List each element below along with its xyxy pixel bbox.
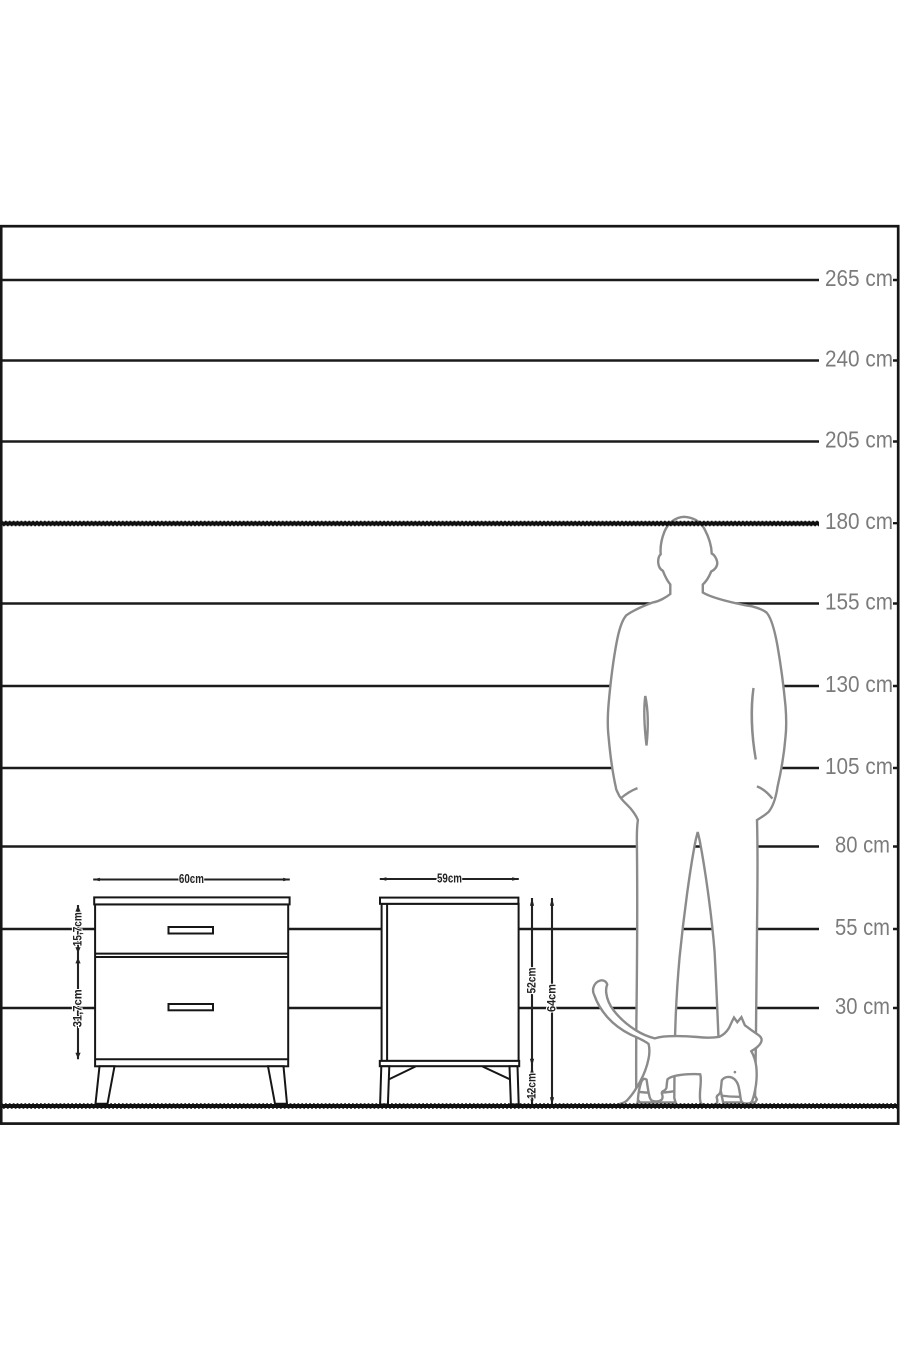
svg-text:59cm: 59cm — [437, 871, 462, 886]
svg-text:52cm: 52cm — [525, 968, 539, 994]
svg-text:130 cm: 130 cm — [825, 671, 893, 697]
svg-text:15,7cm: 15,7cm — [71, 912, 85, 946]
svg-text:205 cm: 205 cm — [825, 426, 893, 452]
svg-text:12cm: 12cm — [525, 1073, 539, 1099]
svg-text:31,7cm: 31,7cm — [71, 989, 85, 1027]
svg-text:30 cm: 30 cm — [835, 993, 890, 1019]
svg-text:64cm: 64cm — [545, 984, 559, 1012]
svg-text:265 cm: 265 cm — [825, 265, 893, 291]
svg-text:155 cm: 155 cm — [825, 588, 893, 614]
svg-text:105 cm: 105 cm — [825, 753, 893, 779]
svg-text:60cm: 60cm — [179, 871, 204, 886]
svg-text:80 cm: 80 cm — [835, 831, 890, 857]
svg-text:180 cm: 180 cm — [825, 508, 893, 534]
svg-text:55 cm: 55 cm — [835, 914, 890, 940]
svg-text:240 cm: 240 cm — [825, 345, 893, 371]
